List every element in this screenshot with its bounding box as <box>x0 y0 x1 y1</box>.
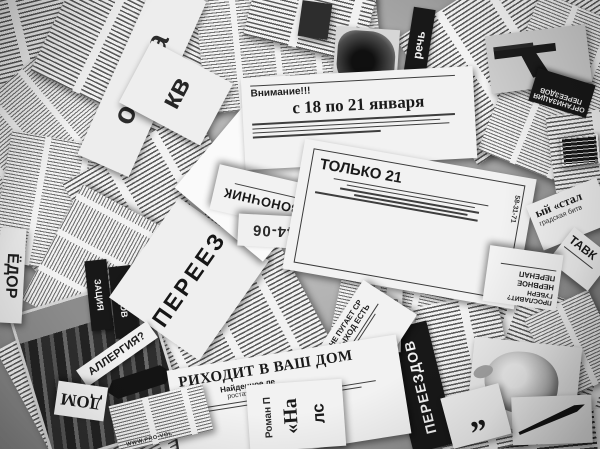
nervnoe-scrap: ПРОСЛАВИТ? ГУБЕРН НЕРВНОЕ ПЕРЕНАП <box>482 245 563 311</box>
roman-author: Роман П <box>262 396 276 438</box>
zaciya-label: ЗАЦИЯ <box>92 279 105 312</box>
na-quote-title: «На <box>279 397 304 434</box>
yodor-letters: ЁДОР <box>1 252 21 298</box>
dom-letters: ДОМ <box>59 388 102 414</box>
pen-silhouette <box>517 400 587 438</box>
photo-fragment <box>298 0 333 40</box>
rech-label: речь <box>410 30 428 60</box>
dom-scrap: ДОМ <box>54 381 108 422</box>
ad-chip <box>559 132 600 167</box>
newspaper-collage-photo: речь ОРГАНИЗАЦИЯ ПЕРЕЕЗДОВ ЗАЦИЯ ЕЗДОВ П… <box>0 0 600 449</box>
quote-mark: „ <box>466 409 485 423</box>
pen-silhouette-paper <box>511 395 593 446</box>
ls-letters: лс <box>308 403 329 424</box>
yodor-strip: ЁДОР <box>0 227 26 323</box>
pereez-letters: ПЕРЕЕЗ <box>146 226 231 332</box>
kv-letters: кв <box>155 72 198 115</box>
roman-ad: Роман П «На лс <box>246 379 346 449</box>
